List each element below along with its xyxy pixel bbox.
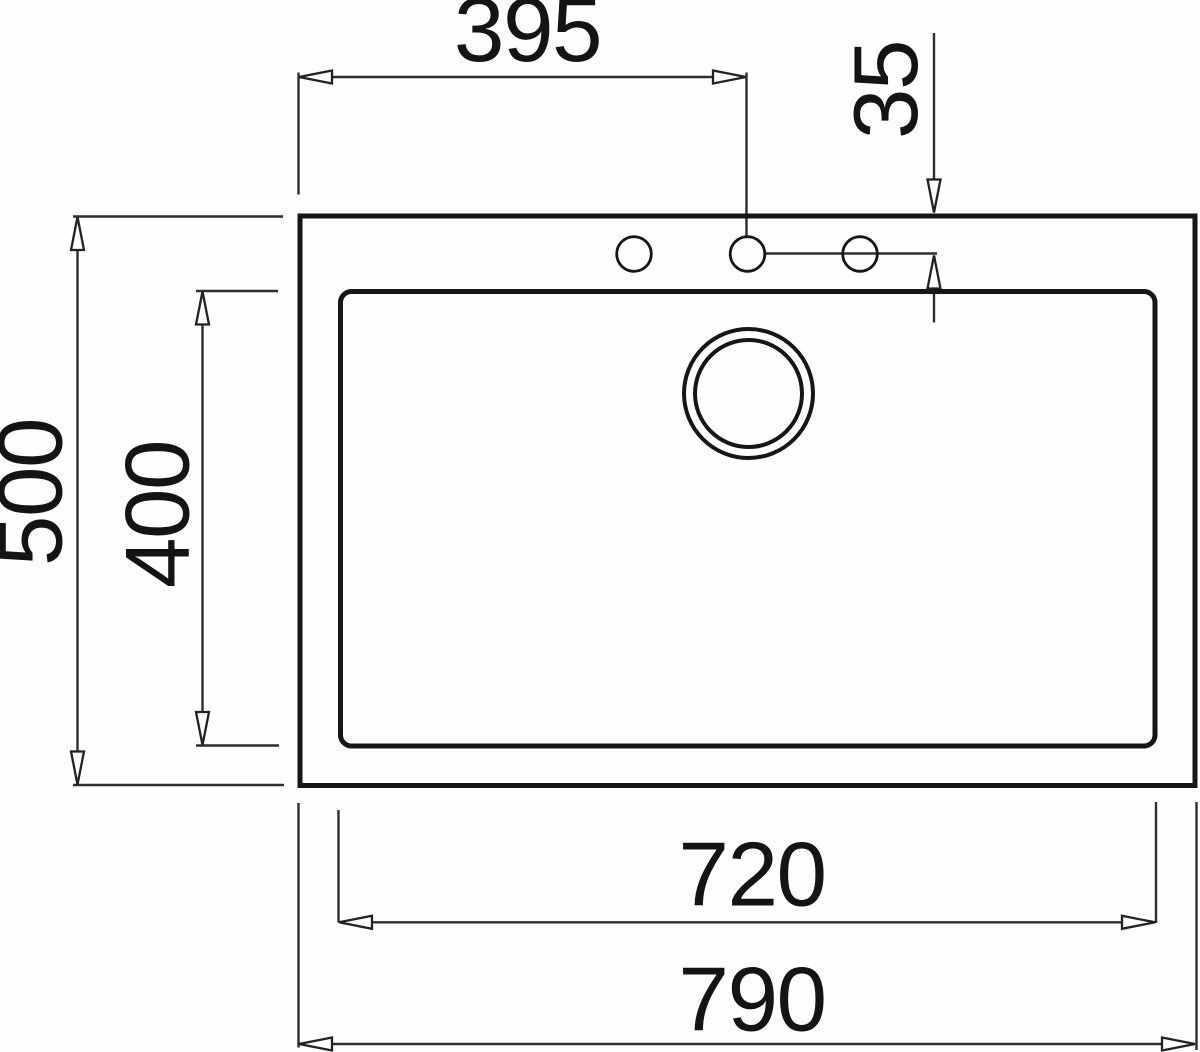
svg-text:395: 395 xyxy=(454,0,601,81)
svg-text:400: 400 xyxy=(108,441,209,588)
svg-text:500: 500 xyxy=(0,419,82,566)
svg-text:720: 720 xyxy=(678,825,825,926)
svg-text:35: 35 xyxy=(836,41,937,139)
svg-text:790: 790 xyxy=(678,950,825,1051)
